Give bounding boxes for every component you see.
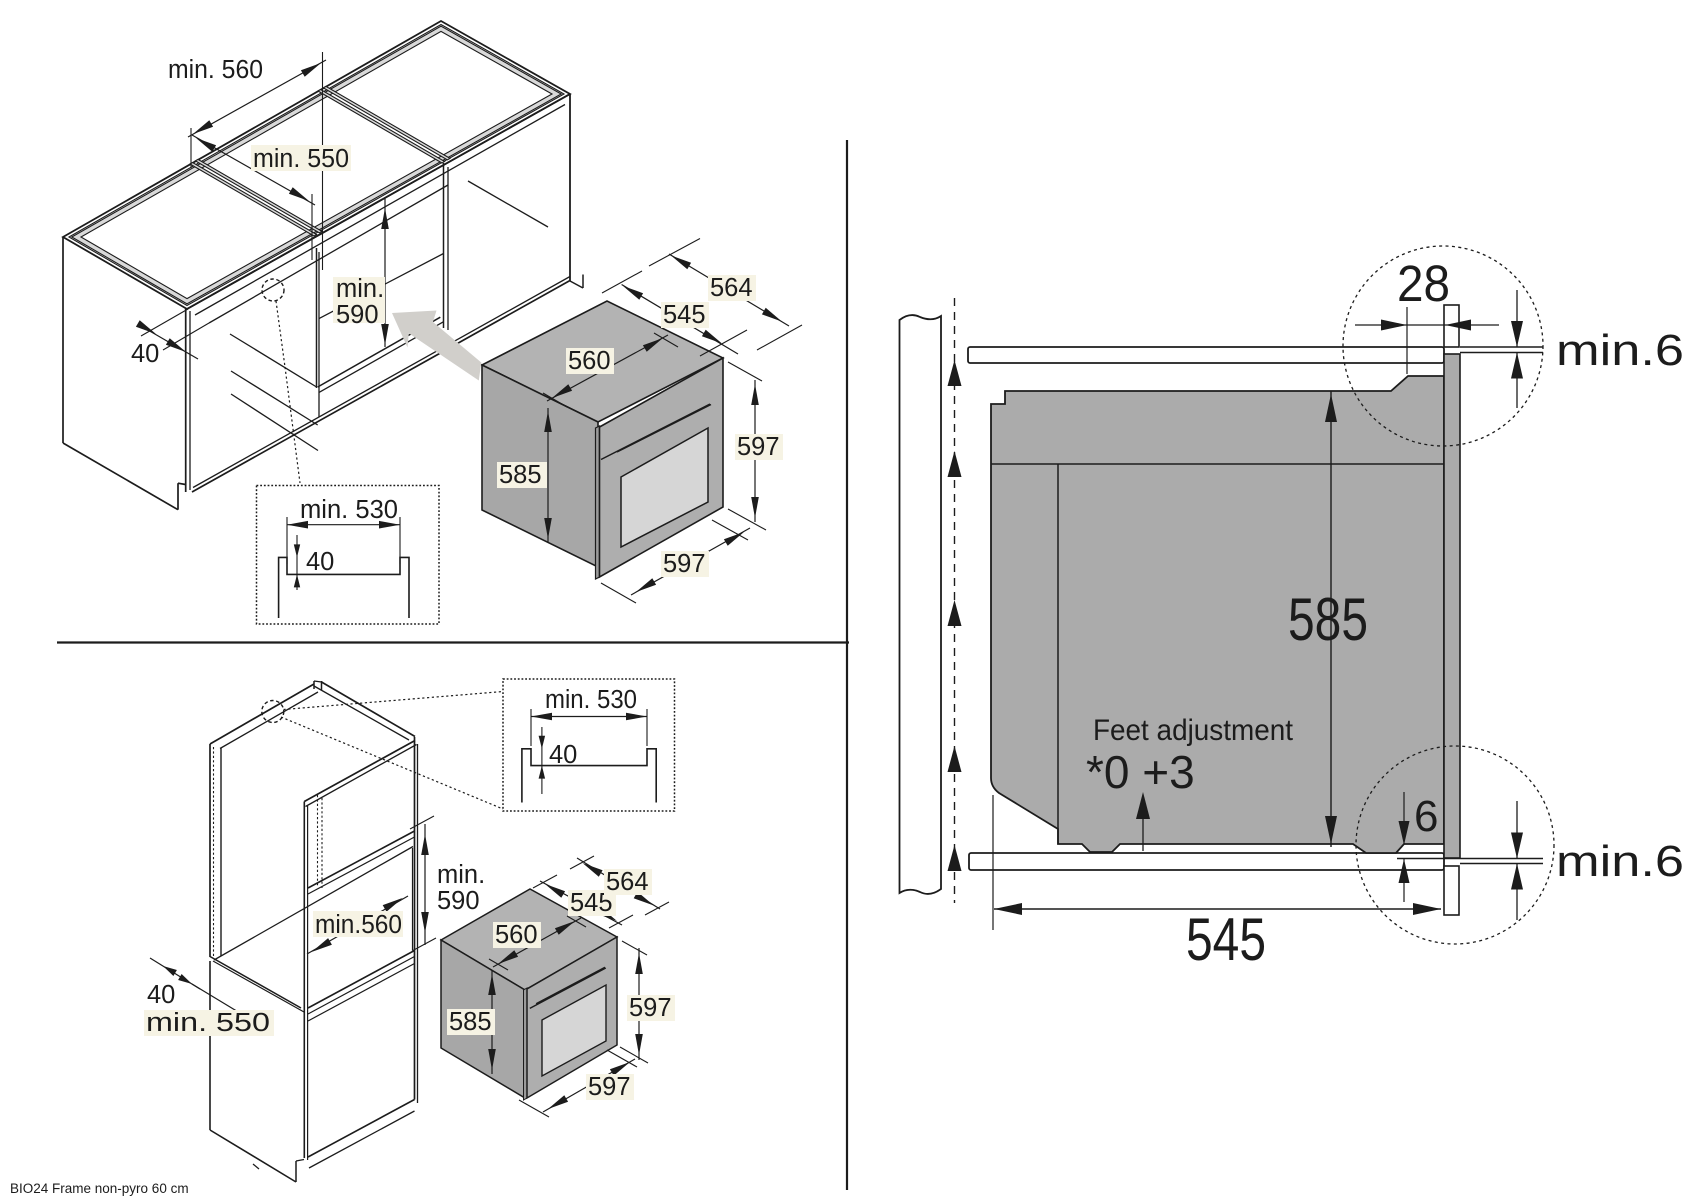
svg-text:564: 564 (606, 868, 649, 896)
svg-text:560: 560 (495, 921, 538, 949)
svg-text:6: 6 (1414, 792, 1438, 841)
svg-text:min. 560: min. 560 (168, 56, 263, 84)
svg-text:560: 560 (568, 347, 611, 375)
svg-text:585: 585 (449, 1008, 492, 1036)
svg-text:590: 590 (336, 301, 379, 329)
svg-text:min.6: min.6 (1556, 837, 1684, 886)
svg-text:min. 550: min. 550 (253, 145, 349, 173)
svg-text:min.: min. (336, 275, 384, 303)
svg-text:545: 545 (1186, 906, 1266, 973)
svg-text:597: 597 (737, 433, 780, 461)
svg-text:564: 564 (710, 274, 753, 302)
svg-text:BIO24 Frame non-pyro 60 cm: BIO24 Frame non-pyro 60 cm (10, 1181, 189, 1196)
svg-text:40: 40 (147, 981, 175, 1009)
svg-text:min. 530: min. 530 (300, 496, 398, 524)
svg-text:28: 28 (1397, 255, 1450, 312)
svg-text:590: 590 (437, 887, 480, 915)
svg-text:40: 40 (306, 548, 334, 576)
svg-text:40: 40 (549, 741, 577, 769)
svg-text:585: 585 (499, 461, 542, 489)
svg-text:597: 597 (588, 1073, 631, 1101)
svg-text:Feet adjustment: Feet adjustment (1093, 714, 1294, 747)
svg-text:597: 597 (629, 994, 672, 1022)
svg-text:min.: min. (437, 861, 485, 889)
svg-text:*0 +3: *0 +3 (1086, 746, 1195, 798)
svg-text:597: 597 (663, 550, 706, 578)
svg-text:min.560: min.560 (315, 911, 402, 939)
svg-text:585: 585 (1288, 586, 1368, 653)
svg-text:min.6: min.6 (1556, 326, 1684, 375)
svg-text:545: 545 (663, 301, 706, 329)
svg-text:min. 550: min. 550 (146, 1009, 270, 1037)
svg-text:min. 530: min. 530 (545, 686, 637, 714)
svg-text:40: 40 (131, 340, 159, 368)
